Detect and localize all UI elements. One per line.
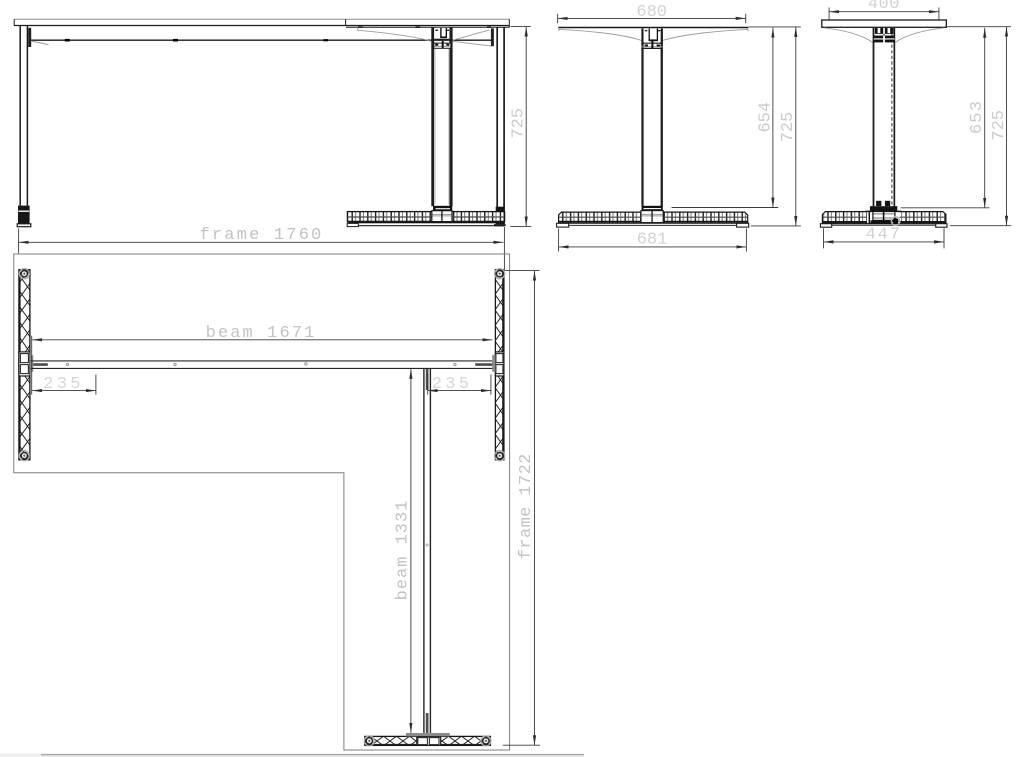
svg-text:653: 653	[968, 100, 987, 134]
svg-text:725: 725	[990, 110, 1009, 141]
svg-text:680: 680	[636, 3, 667, 22]
svg-text:681: 681	[637, 230, 668, 249]
svg-text:725: 725	[510, 108, 529, 139]
svg-text:725: 725	[779, 112, 798, 143]
svg-text:frame 1722: frame 1722	[517, 453, 536, 559]
svg-text:400: 400	[868, 0, 900, 14]
svg-text:frame 1760: frame 1760	[199, 226, 323, 245]
svg-text:447: 447	[866, 226, 902, 245]
svg-text:beam 1671: beam 1671	[206, 324, 317, 343]
svg-text:654: 654	[756, 102, 775, 133]
svg-text:235: 235	[432, 375, 473, 394]
svg-text:235: 235	[43, 375, 84, 394]
svg-text:beam 1331: beam 1331	[394, 500, 413, 601]
